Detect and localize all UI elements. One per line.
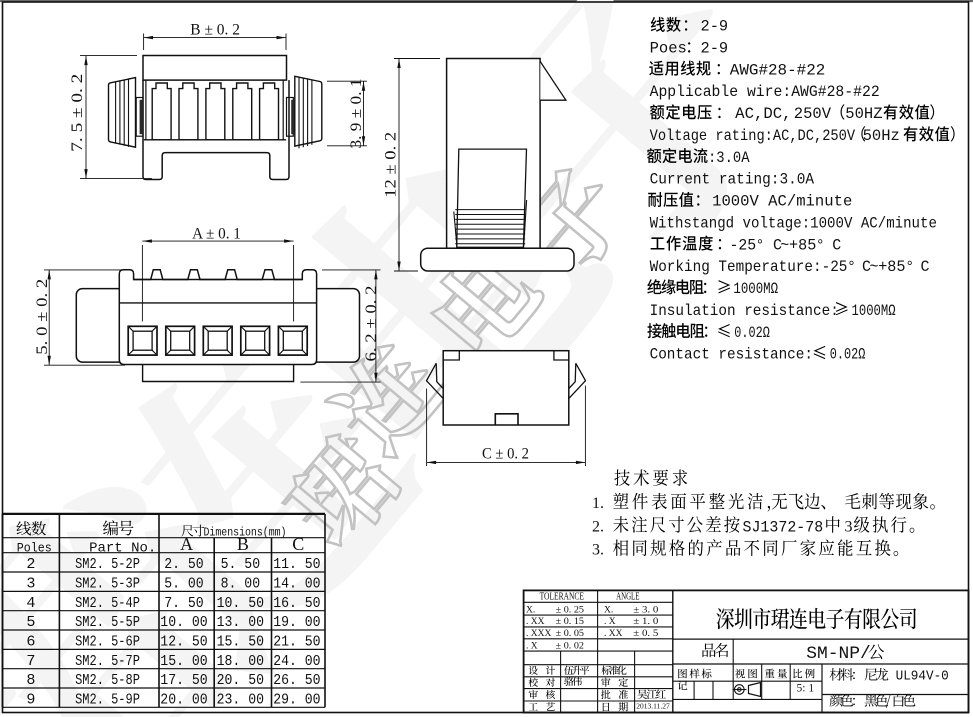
svg-text:°: ° (816, 236, 825, 254)
svg-text:50HZ: 50HZ (845, 105, 882, 123)
svg-text:2-9: 2-9 (701, 40, 729, 58)
svg-text:6. 2 ± 0. 2: 6. 2 ± 0. 2 (362, 286, 380, 362)
svg-text:250V: 250V (794, 105, 832, 123)
svg-text:23. 00: 23. 00 (217, 692, 264, 708)
svg-text:10. 50: 10. 50 (217, 596, 264, 612)
svg-text:. X: . X (604, 617, 616, 627)
svg-text:Working Temperature:-25: Working Temperature:-25 (650, 258, 848, 276)
svg-text:5. 0 ± 0. 2: 5. 0 ± 0. 2 (33, 279, 51, 355)
svg-text:6: 6 (26, 632, 35, 650)
svg-text:0.02Ω: 0.02Ω (830, 346, 866, 364)
svg-text:A ± 0. 1: A ± 0. 1 (192, 224, 241, 242)
svg-text:3. 9 ± 0. 1: 3. 9 ± 0. 1 (347, 79, 365, 149)
svg-text:± 0. 05: ± 0. 05 (556, 629, 585, 639)
svg-text:± 0. 5: ± 0. 5 (633, 629, 658, 639)
svg-text:5: 5 (26, 613, 35, 631)
svg-text:3: 3 (845, 518, 853, 535)
svg-text:Current rating:3.0A: Current rating:3.0A (650, 171, 815, 189)
svg-text:12 ± 0. 2: 12 ± 0. 2 (382, 132, 400, 198)
svg-text:± 0. 02: ± 0. 02 (556, 641, 585, 651)
svg-text:B ± 0. 2: B ± 0. 2 (190, 20, 240, 38)
svg-text:SM2. 5-8P: SM2. 5-8P (75, 673, 140, 689)
svg-text:± 0. 15: ± 0. 15 (556, 617, 585, 627)
svg-text:± 0. 25: ± 0. 25 (556, 605, 585, 615)
svg-text:Poes: Poes (650, 40, 687, 58)
svg-text:C ± 0. 2: C ± 0. 2 (482, 444, 529, 462)
svg-text:9: 9 (26, 690, 35, 708)
svg-text:UL94V-0: UL94V-0 (896, 670, 949, 685)
svg-text:Part No.: Part No. (89, 541, 156, 557)
svg-text:2.: 2. (592, 518, 604, 535)
svg-text:AC,DC,: AC,DC, (735, 105, 791, 123)
svg-text:SM2. 5-5P: SM2. 5-5P (75, 615, 140, 631)
svg-text:10. 00: 10. 00 (160, 615, 207, 631)
svg-text:C: C (921, 258, 930, 276)
svg-text:18. 00: 18. 00 (217, 654, 264, 670)
svg-text:20. 50: 20. 50 (217, 673, 264, 689)
svg-text:2. 50: 2. 50 (164, 557, 204, 573)
svg-text:5. 00: 5. 00 (164, 576, 204, 592)
svg-text:. XX: . XX (604, 629, 623, 639)
svg-text:5. 50: 5. 50 (221, 557, 261, 573)
svg-text:°: ° (847, 258, 856, 276)
svg-text:X.: X. (604, 605, 613, 615)
svg-text:15. 50: 15. 50 (217, 634, 264, 650)
svg-text:29. 00: 29. 00 (273, 692, 320, 708)
svg-text:17. 50: 17. 50 (160, 673, 207, 689)
svg-text:1000MΩ: 1000MΩ (733, 280, 778, 298)
svg-text:20. 00: 20. 00 (160, 692, 207, 708)
svg-text:12. 50: 12. 50 (160, 634, 207, 650)
svg-text:TOLERANCE: TOLERANCE (540, 591, 584, 602)
svg-text:8: 8 (26, 671, 35, 689)
svg-text:1000V AC/minute: 1000V AC/minute (712, 193, 852, 211)
svg-text:19. 00: 19. 00 (273, 615, 320, 631)
svg-text:21. 50: 21. 50 (273, 634, 320, 650)
svg-text:+85: +85 (878, 258, 905, 276)
svg-text:°: ° (905, 258, 914, 276)
svg-text:2013.11.27: 2013.11.27 (636, 702, 670, 711)
svg-text:8. 00: 8. 00 (221, 576, 261, 592)
svg-text:Contact resistance:: Contact resistance: (650, 346, 813, 364)
svg-text:7: 7 (26, 652, 35, 670)
svg-text:50Hz: 50Hz (863, 127, 900, 145)
svg-text:4: 4 (26, 594, 35, 612)
svg-text:± 3. 0: ± 3. 0 (633, 605, 658, 615)
svg-text:Applicable wire:AWG#28-#22: Applicable wire:AWG#28-#22 (650, 83, 880, 101)
svg-text:X.: X. (526, 605, 535, 615)
svg-text:C: C (832, 236, 841, 254)
svg-text:B: B (237, 534, 249, 554)
svg-text:1000MΩ: 1000MΩ (852, 302, 896, 320)
svg-text:15. 00: 15. 00 (160, 654, 207, 670)
svg-text:SM2. 5-7P: SM2. 5-7P (75, 654, 140, 670)
svg-text:SM2. 5-9P: SM2. 5-9P (75, 692, 140, 708)
svg-text:24. 00: 24. 00 (273, 654, 320, 670)
svg-text:± 1. 0: ± 1. 0 (633, 617, 658, 627)
svg-text:11. 50: 11. 50 (273, 557, 320, 573)
svg-text:~: ~ (870, 258, 879, 276)
svg-text:~: ~ (780, 236, 789, 254)
svg-text:-25: -25 (730, 236, 757, 254)
svg-text:ANGLE: ANGLE (616, 591, 639, 602)
svg-text:+85: +85 (789, 236, 816, 254)
svg-text:2-9: 2-9 (701, 18, 729, 36)
svg-text:5: 1: 5: 1 (797, 683, 815, 695)
svg-text:1.: 1. (592, 495, 604, 512)
svg-text:SM-NP/: SM-NP/ (806, 645, 871, 664)
svg-text:13. 00: 13. 00 (217, 615, 264, 631)
svg-text:Poles: Poles (17, 542, 52, 556)
svg-text:. X: . X (526, 641, 538, 651)
svg-text:Insulation resistance:: Insulation resistance: (650, 302, 839, 320)
svg-text:SM2. 5-6P: SM2. 5-6P (75, 634, 140, 650)
svg-text:16. 50: 16. 50 (273, 596, 320, 612)
svg-text:. XXX: . XXX (526, 629, 551, 639)
svg-text:26. 50: 26. 50 (273, 673, 320, 689)
svg-text:Withstangd voltage:1000V AC/mi: Withstangd voltage:1000V AC/minute (650, 214, 937, 232)
svg-text:°: ° (756, 236, 765, 254)
svg-text::3.0A: :3.0A (708, 149, 750, 167)
svg-text:3.: 3. (592, 542, 604, 559)
svg-text:Voltage rating:AC,DC,250V: Voltage rating:AC,DC,250V (650, 127, 856, 145)
svg-text:0.02Ω: 0.02Ω (734, 324, 770, 342)
svg-text:SM2. 5-2P: SM2. 5-2P (75, 557, 140, 573)
svg-text:AWG#28-#22: AWG#28-#22 (730, 61, 826, 79)
svg-text:3: 3 (26, 574, 35, 592)
svg-text:C: C (292, 534, 304, 554)
svg-text:2: 2 (26, 555, 35, 573)
svg-text:SJ1372-78: SJ1372-78 (743, 518, 824, 536)
svg-text:SM2. 5-3P: SM2. 5-3P (75, 576, 140, 592)
svg-text:SM2. 5-4P: SM2. 5-4P (75, 596, 140, 612)
svg-text:7. 50: 7. 50 (164, 596, 204, 612)
svg-text:7. 5 ± 0. 2: 7. 5 ± 0. 2 (68, 74, 86, 152)
svg-text:A: A (180, 534, 193, 554)
svg-text:14. 00: 14. 00 (273, 576, 320, 592)
svg-text:. XX: . XX (526, 617, 545, 627)
